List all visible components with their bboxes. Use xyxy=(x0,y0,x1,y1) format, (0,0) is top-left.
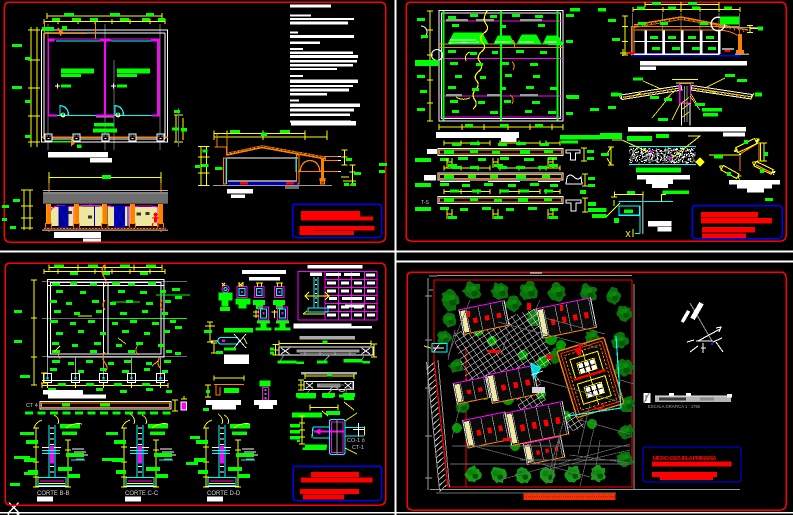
svg-text:T-S: T-S xyxy=(421,200,429,206)
svg-text:ESCALA GRAFICA 1 : 1750: ESCALA GRAFICA 1 : 1750 xyxy=(648,404,701,409)
svg-text:CT-1: CT-1 xyxy=(352,445,364,451)
svg-text:CORTE C-C: CORTE C-C xyxy=(125,491,159,497)
svg-text:CORTE B-B: CORTE B-B xyxy=(37,491,70,497)
svg-text:CO-1 ó: CO-1 ó xyxy=(347,438,365,444)
svg-text:MICRO ESCUELA PRIMARIA: MICRO ESCUELA PRIMARIA xyxy=(653,456,718,462)
svg-text:CT 4: CT 4 xyxy=(26,403,38,409)
svg-text:CORTE D-D: CORTE D-D xyxy=(207,491,241,497)
